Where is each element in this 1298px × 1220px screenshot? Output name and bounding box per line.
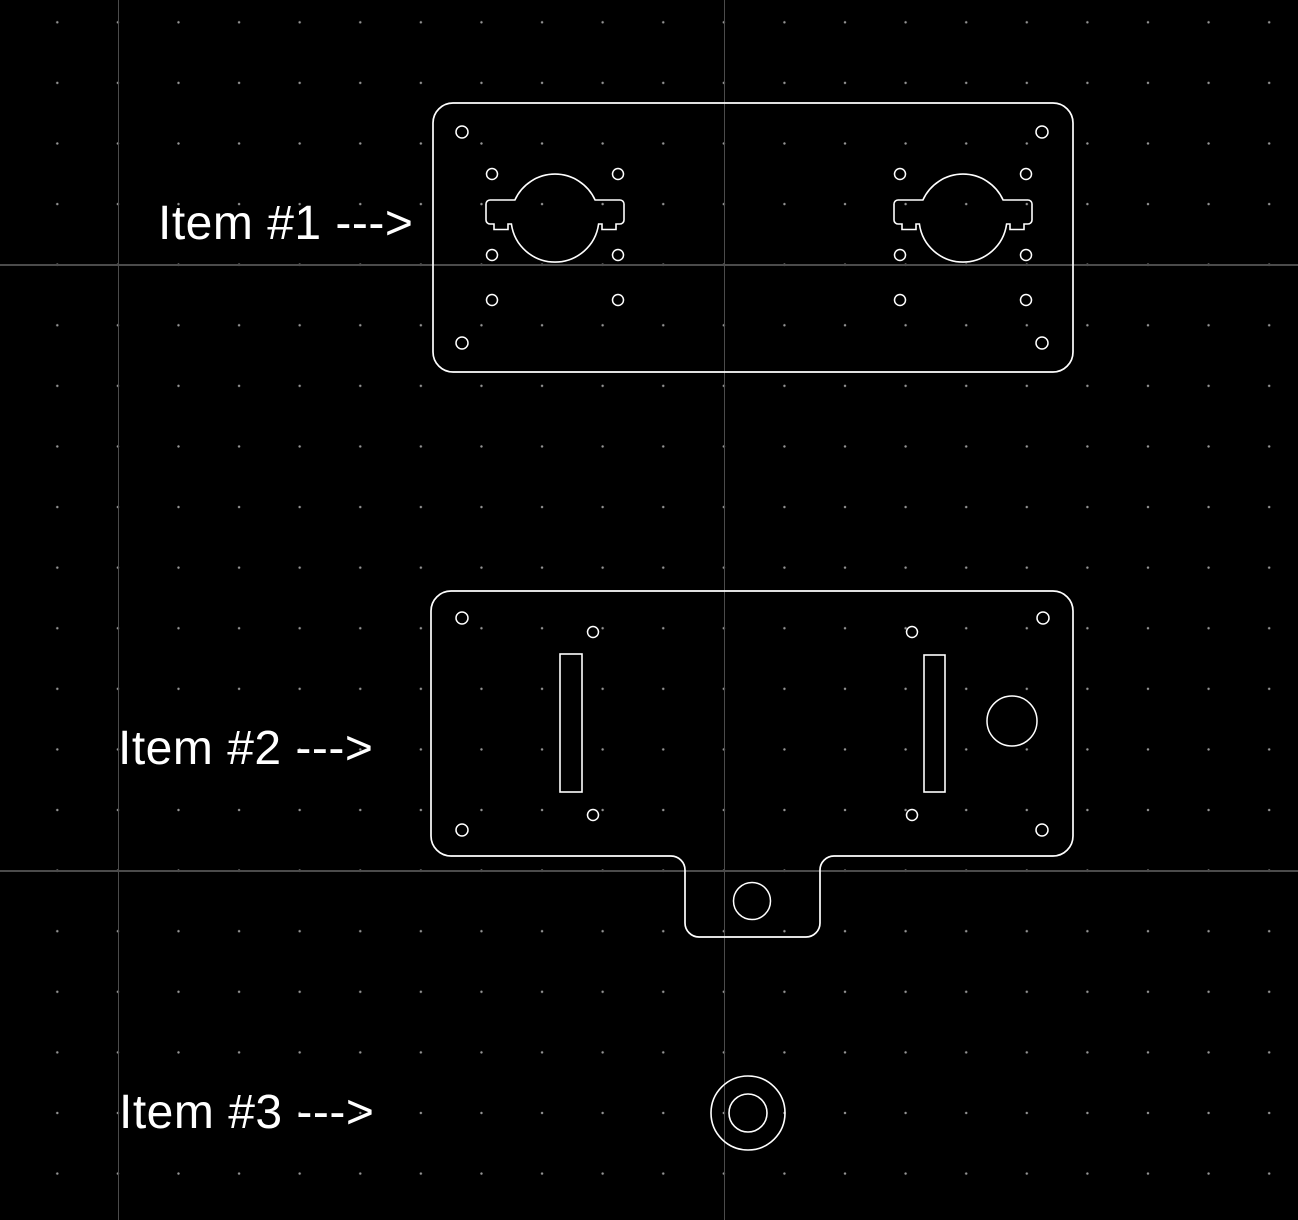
item-1-motor-cutout-right[interactable] [894, 174, 1032, 262]
item-2-slot-left[interactable] [560, 654, 582, 792]
item-1-mount-hole[interactable] [487, 295, 498, 306]
item-1-motor-cutout-left[interactable] [486, 174, 624, 262]
item-2-corner-hole[interactable] [1036, 824, 1048, 836]
item-1-mount-hole[interactable] [1021, 295, 1032, 306]
item-1-mount-hole[interactable] [487, 250, 498, 261]
item-3-washer-inner[interactable] [729, 1094, 767, 1132]
item-2-inner-hole[interactable] [907, 810, 918, 821]
item-2-inner-hole[interactable] [588, 810, 599, 821]
item-2-slot-right[interactable] [924, 655, 945, 792]
item-1-mount-hole[interactable] [613, 250, 624, 261]
item-2-corner-hole[interactable] [456, 824, 468, 836]
item-1-corner-hole[interactable] [456, 337, 468, 349]
item-1-mount-hole[interactable] [895, 295, 906, 306]
item-2-corner-hole[interactable] [456, 612, 468, 624]
item-2-large-hole[interactable] [987, 696, 1037, 746]
item-1-corner-hole[interactable] [456, 126, 468, 138]
item-3-label[interactable]: Item #3 ---> [119, 1089, 374, 1137]
item-1-plate-outline[interactable] [433, 103, 1073, 372]
item-1-corner-hole[interactable] [1036, 126, 1048, 138]
item-1-label[interactable]: Item #1 ---> [158, 200, 413, 248]
item-1-mount-hole[interactable] [895, 250, 906, 261]
item-1-mount-hole[interactable] [1021, 250, 1032, 261]
item-2-inner-hole[interactable] [907, 627, 918, 638]
item-2-tab-hole[interactable] [734, 883, 771, 920]
item-1-corner-hole[interactable] [1036, 337, 1048, 349]
item-1-mount-hole[interactable] [613, 295, 624, 306]
item-2-label[interactable]: Item #2 ---> [118, 725, 373, 773]
item-2-inner-hole[interactable] [588, 627, 599, 638]
cad-viewport[interactable]: Item #1 ---> Item #2 ---> Item #3 ---> [0, 0, 1298, 1220]
item-2-corner-hole[interactable] [1037, 612, 1049, 624]
drawing-layer [0, 0, 1298, 1220]
item-2-plate-outline-with-tab[interactable] [431, 591, 1073, 937]
item-1-mount-hole[interactable] [487, 169, 498, 180]
item-1-mount-hole[interactable] [1021, 169, 1032, 180]
item-3-washer-outer[interactable] [711, 1076, 785, 1150]
item-1-mount-hole[interactable] [613, 169, 624, 180]
item-1-mount-hole[interactable] [895, 169, 906, 180]
